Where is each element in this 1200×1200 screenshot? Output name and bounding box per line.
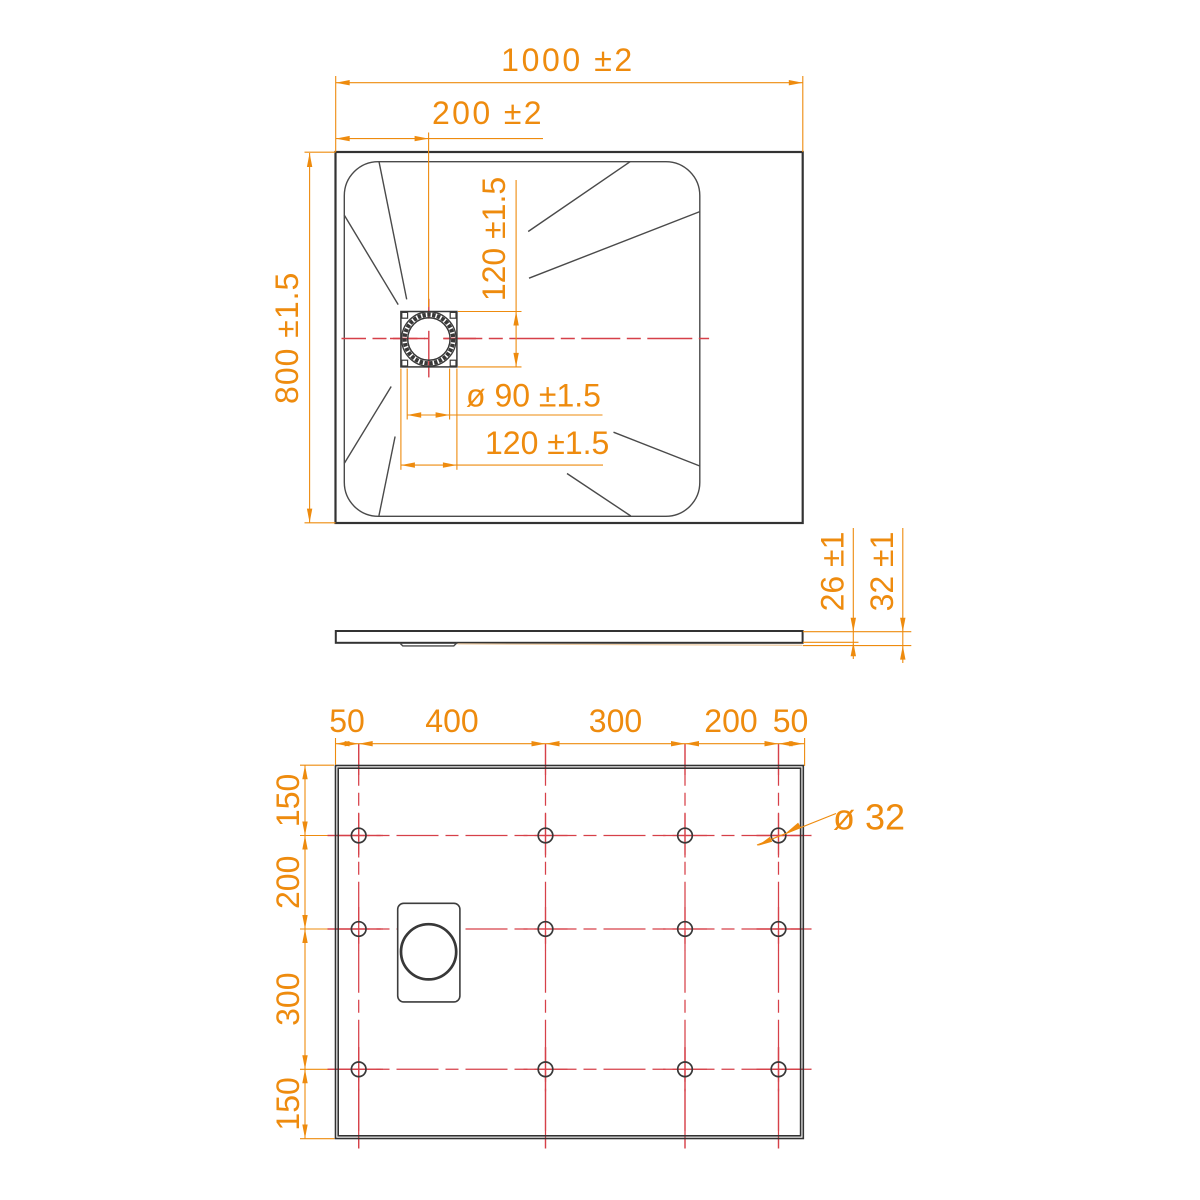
svg-text:150: 150 [270, 774, 306, 827]
svg-text:50: 50 [329, 703, 365, 739]
svg-text:ø 90 ±1.5: ø 90 ±1.5 [466, 378, 601, 414]
svg-text:ø 32: ø 32 [833, 797, 905, 838]
svg-text:300: 300 [589, 703, 642, 739]
svg-text:1000 ±2: 1000 ±2 [501, 42, 635, 78]
svg-text:120 ±1.5: 120 ±1.5 [476, 177, 512, 301]
svg-text:300: 300 [270, 973, 306, 1026]
svg-text:200: 200 [270, 856, 306, 909]
svg-text:32 ±1: 32 ±1 [864, 532, 900, 612]
svg-text:200: 200 [704, 703, 757, 739]
svg-text:50: 50 [773, 703, 809, 739]
svg-text:120 ±1.5: 120 ±1.5 [485, 425, 609, 461]
svg-text:400: 400 [425, 703, 478, 739]
svg-text:150: 150 [270, 1077, 306, 1130]
svg-text:200 ±2: 200 ±2 [432, 95, 544, 131]
svg-text:800 ±1.5: 800 ±1.5 [269, 272, 305, 404]
svg-text:26 ±1: 26 ±1 [815, 532, 851, 612]
